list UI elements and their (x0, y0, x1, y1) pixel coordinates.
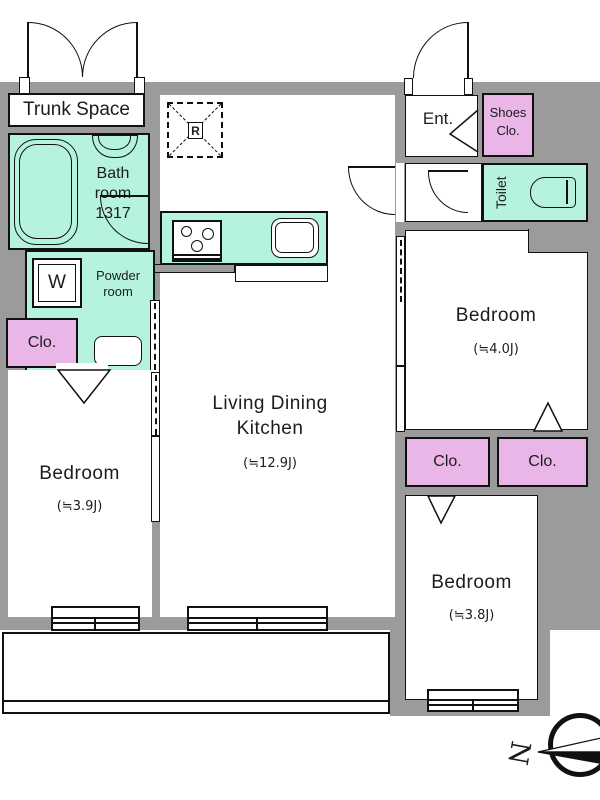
ldk-size: (≒12.9J) (180, 455, 360, 471)
washer-icon: W (32, 258, 82, 308)
trunk-door-jamb-left (19, 77, 30, 94)
bedroom-south-name: Bedroom (408, 571, 535, 595)
toilet-icon (530, 177, 576, 208)
kitchen-half-wall (152, 264, 235, 273)
window-bedroom-south (427, 689, 519, 712)
stove-icon (172, 220, 222, 262)
trunk-door-arc-right (82, 22, 137, 77)
entrance-jamb-right (464, 78, 473, 95)
floor-plan: Living Dining Kitchen (≒12.9J) R Trunk S… (0, 0, 600, 800)
window-bedroom-west (51, 606, 140, 631)
closet-east-1: Clo. (405, 437, 490, 487)
closet-east-2-label: Clo. (528, 453, 556, 471)
trunk-door-arc-left (28, 22, 83, 77)
entrance-jamb-left (404, 78, 413, 95)
bedroom-south-size: (≒3.8J) (408, 607, 535, 623)
bathroom-label-line1: Bath (82, 164, 144, 184)
closet-west-label: Clo. (28, 334, 56, 352)
balcony-edge-line (4, 700, 388, 702)
trunk-door-jamb-right (134, 77, 145, 94)
window-ldk (187, 606, 328, 631)
sliding-door-powder (150, 300, 160, 373)
entrance-door-leaf (467, 22, 469, 80)
shoes-closet-line1: Shoes (484, 104, 532, 120)
entrance-opening (408, 82, 469, 96)
trunk-door-leaf-right (136, 22, 138, 78)
toilet-door-leaf (428, 170, 468, 172)
washer-label: W (38, 264, 76, 302)
fridge-space: R (167, 102, 223, 158)
powder-label-line2: room (85, 284, 151, 299)
shoes-closet-line2: Clo. (484, 122, 532, 138)
kitchen-sink-icon (271, 218, 319, 258)
balcony (2, 632, 390, 714)
vanity-icon (94, 336, 142, 366)
closet-east-2: Clo. (497, 437, 588, 487)
bathtub-icon (14, 139, 78, 245)
fold-door-bedroom-west (52, 368, 116, 408)
bedroom-west-name: Bedroom (12, 462, 147, 486)
sliding-door-bedroom-west (151, 372, 160, 522)
fridge-icon: R (188, 122, 203, 139)
ldk-door-opening (396, 163, 404, 222)
trunk-door-leaf-left (27, 22, 29, 78)
powder-label-line1: Powder (85, 268, 151, 283)
entrance-door-arc (413, 22, 468, 78)
bath-door-leaf (100, 195, 148, 197)
ldk-name-line1: Living Dining (180, 392, 360, 416)
bedroom-east-name: Bedroom (430, 304, 562, 328)
ldk-name-line2: Kitchen (180, 417, 360, 441)
shoes-closet-fold-icon (444, 106, 480, 156)
trunk-space-text: Trunk Space (23, 99, 130, 121)
counter-return (235, 265, 328, 282)
bedroom-east-size: (≒4.0J) (430, 341, 562, 357)
closet-west: Clo. (6, 318, 78, 368)
ldk-door-leaf (348, 166, 395, 168)
closet-east-1-label: Clo. (433, 453, 461, 471)
fold-door-bedroom-east (528, 399, 568, 434)
sliding-door-bedroom-east (396, 236, 405, 432)
bedroom-east-notch (528, 229, 588, 253)
toilet-label: Toilet (490, 167, 512, 219)
fold-door-bedroom-south (422, 493, 462, 527)
trunk-space-label: Trunk Space (8, 93, 145, 127)
bedroom-west-size: (≒3.9J) (12, 498, 147, 514)
compass-north-label: N (500, 735, 539, 770)
